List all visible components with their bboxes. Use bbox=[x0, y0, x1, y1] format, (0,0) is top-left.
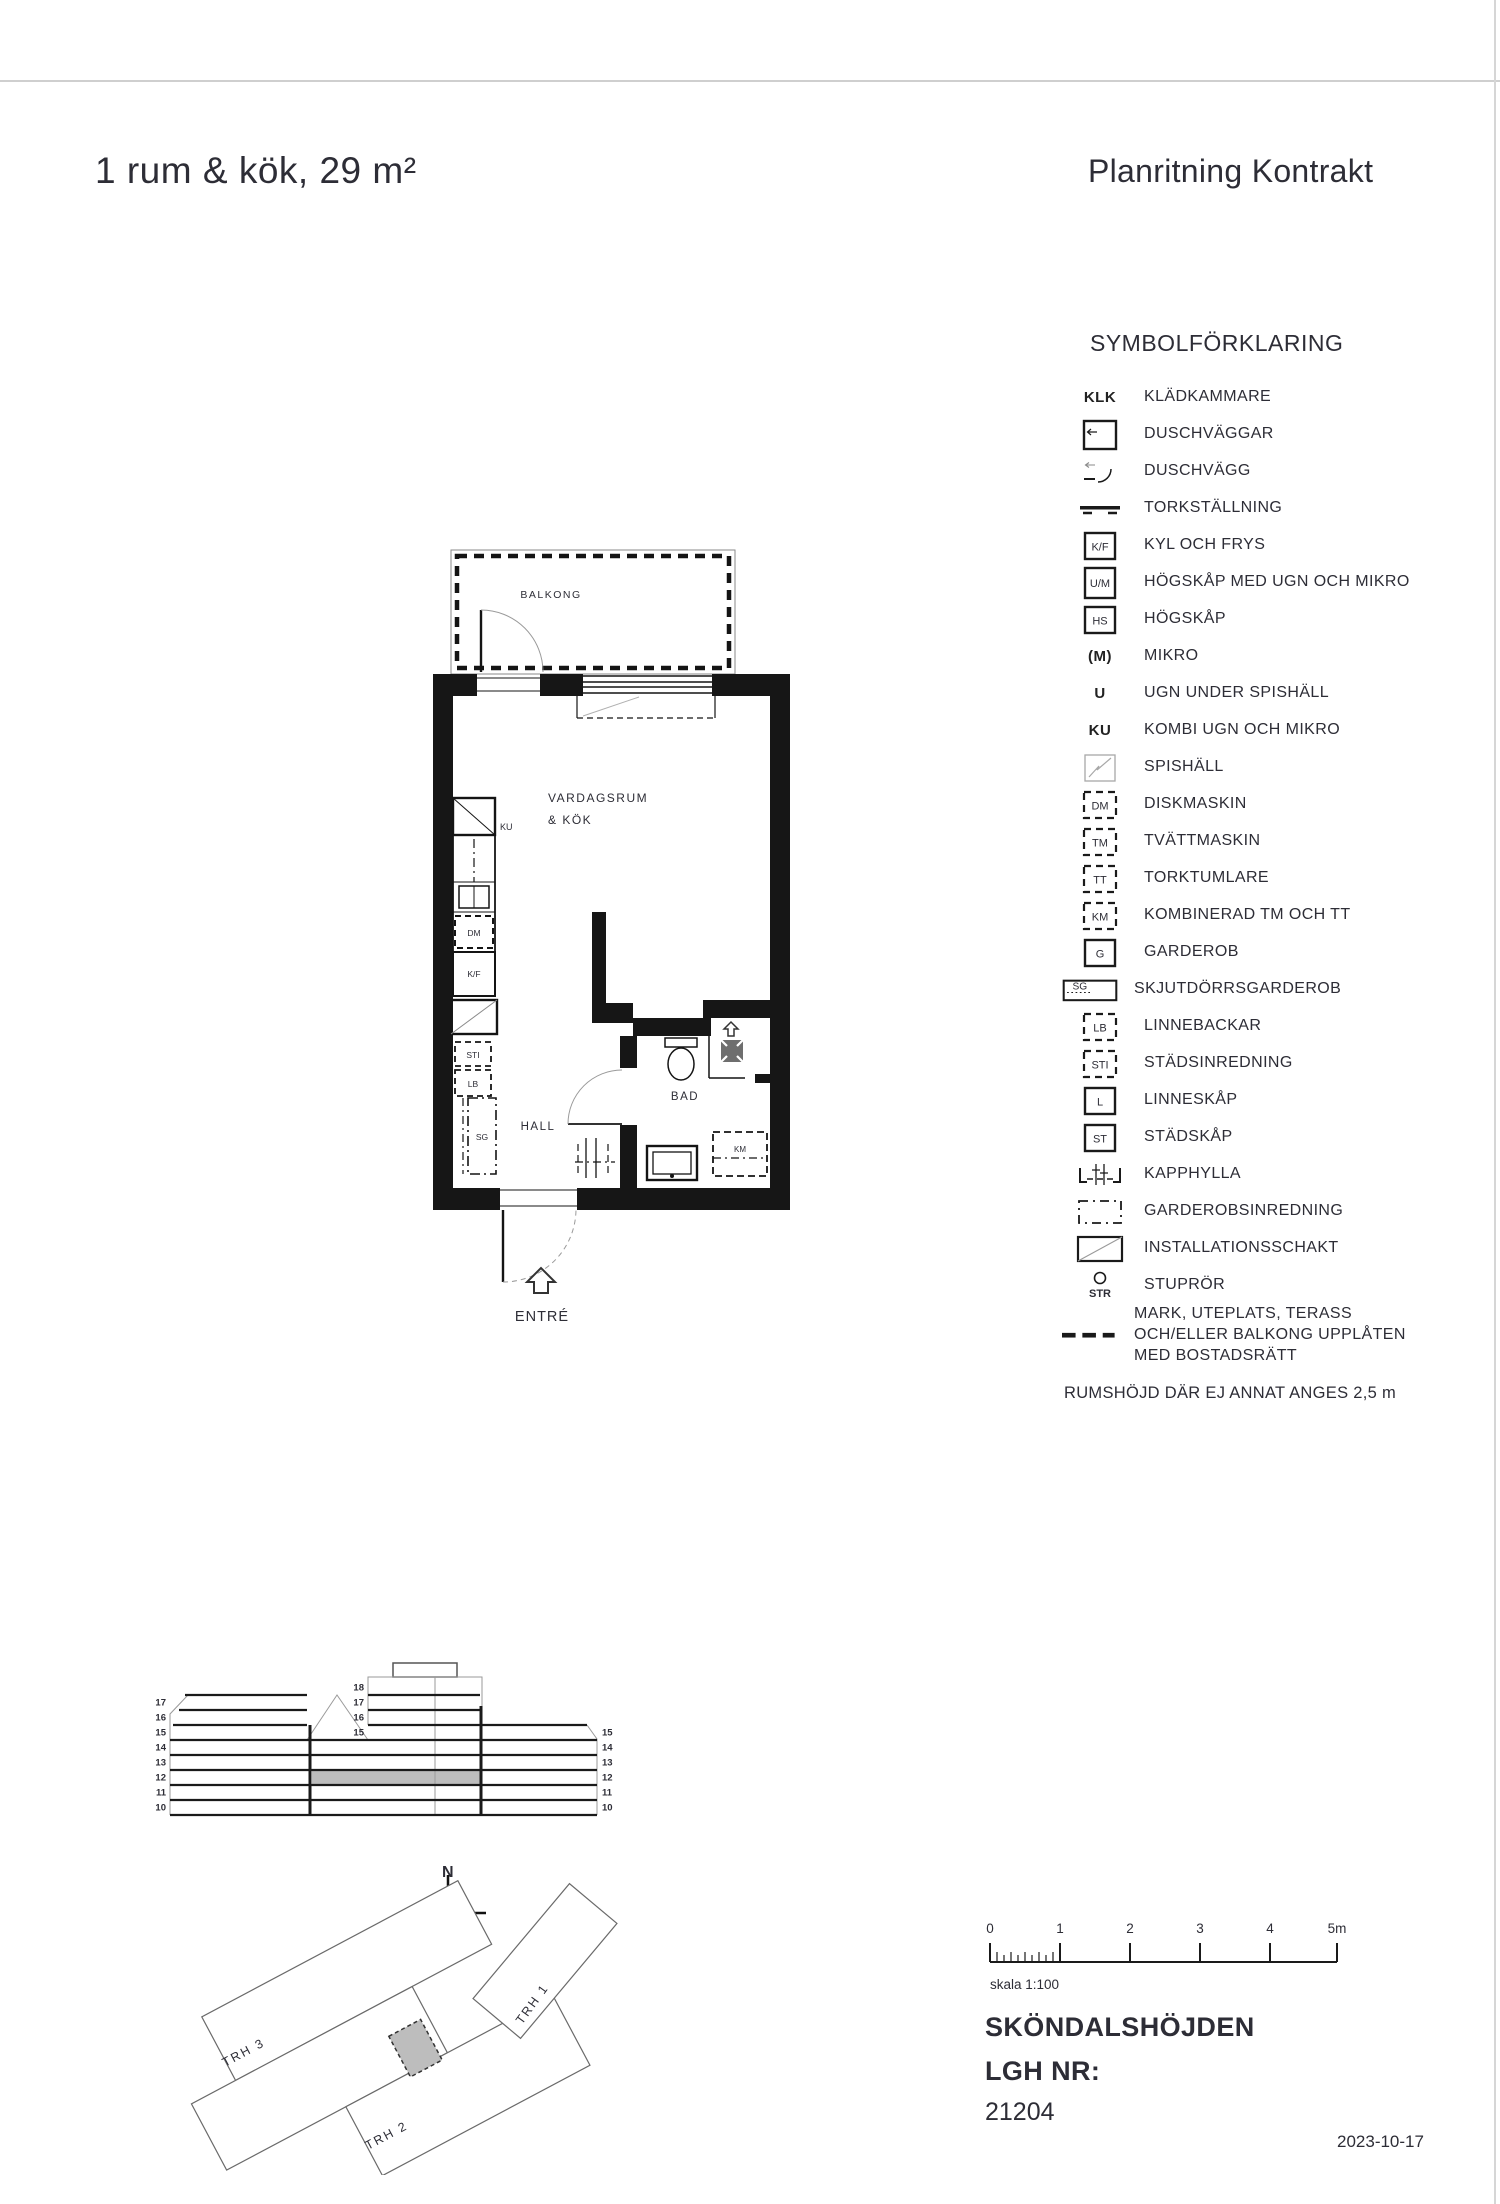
legend-item: KM KOMBINERAD TM OCH TT bbox=[1072, 897, 1496, 934]
washer-dryer-unit bbox=[713, 1132, 767, 1176]
svg-text:HS: HS bbox=[1092, 615, 1107, 627]
shower-arrow-icon bbox=[724, 1022, 738, 1036]
svg-text:TT: TT bbox=[1093, 874, 1107, 886]
legend-symbol: L bbox=[1072, 1086, 1128, 1116]
page-title: 1 rum & kök, 29 m² bbox=[95, 150, 417, 192]
toilet bbox=[665, 1038, 697, 1080]
legend-symbol bbox=[1072, 456, 1128, 488]
legend-symbol: LB bbox=[1072, 1012, 1128, 1042]
legend-symbol: ST bbox=[1072, 1123, 1128, 1153]
elevation-section-dividers bbox=[310, 1706, 481, 1815]
svg-text:TM: TM bbox=[1092, 837, 1108, 849]
scale-tick-3: 3 bbox=[1196, 1921, 1204, 1936]
legend-item-label: TORKTUMLARE bbox=[1144, 868, 1269, 889]
legend-item: TORKSTÄLLNING bbox=[1072, 490, 1496, 527]
legend-item-label: DUSCHVÄGG bbox=[1144, 461, 1251, 482]
elevation-left-floor-numbers: 1716151413121110 bbox=[155, 1698, 166, 1814]
scale-tick-4: 4 bbox=[1266, 1921, 1274, 1936]
balcony-label: BALKONG bbox=[520, 589, 581, 601]
svg-text:SG: SG bbox=[1072, 981, 1087, 992]
floor-number: 18 bbox=[353, 1683, 364, 1694]
box-icon: G bbox=[1083, 938, 1117, 968]
scale-bar: 0 1 2 3 4 5m skala 1:100 bbox=[975, 1905, 1375, 2000]
legend-item-label: GARDEROBSINREDNING bbox=[1144, 1201, 1343, 1222]
sg-label: SG bbox=[476, 1132, 488, 1142]
floor-number: 12 bbox=[155, 1773, 166, 1784]
legend-item-label: KOMBI UGN OCH MIKRO bbox=[1144, 720, 1340, 741]
floor-number: 15 bbox=[353, 1728, 364, 1739]
legend-item-label: HÖGSKÅP MED UGN OCH MIKRO bbox=[1144, 572, 1410, 593]
legend-item: KLK KLÄDKAMMARE bbox=[1072, 379, 1496, 416]
apartment-number: 21204 bbox=[985, 2098, 1055, 2127]
lb-label: LB bbox=[468, 1079, 479, 1089]
floor-number: 10 bbox=[602, 1803, 613, 1814]
svg-text:G: G bbox=[1096, 948, 1105, 960]
scale-tick-labels: 0 1 2 3 4 5m bbox=[986, 1921, 1346, 1936]
living-room-label-line2: & KÖK bbox=[548, 813, 592, 827]
legend-item-label: LINNESKÅP bbox=[1144, 1090, 1237, 1111]
drying-rack-icon bbox=[1077, 497, 1123, 521]
balcony-door-swing bbox=[481, 610, 543, 672]
legend-item-label: SKJUTDÖRRSGARDEROB bbox=[1134, 979, 1341, 1000]
legend-symbol bbox=[1072, 497, 1128, 521]
elevation-floor-lines bbox=[170, 1695, 597, 1815]
legend-symbol bbox=[1072, 1235, 1128, 1263]
legend-symbol: U bbox=[1072, 685, 1128, 702]
floor-number: 15 bbox=[155, 1728, 166, 1739]
balcony: BALKONG bbox=[451, 550, 735, 674]
svg-text:K/F: K/F bbox=[1091, 541, 1108, 553]
svg-text:ST: ST bbox=[1093, 1133, 1107, 1145]
legend-item-label: INSTALLATIONSSCHAKT bbox=[1144, 1238, 1339, 1259]
legend-symbol bbox=[1072, 1198, 1128, 1226]
floor-number: 10 bbox=[155, 1803, 166, 1814]
legend-item-label: MIKRO bbox=[1144, 646, 1198, 667]
box-icon: HS bbox=[1083, 605, 1117, 635]
legend-symbol bbox=[1072, 753, 1128, 783]
box-dashed-icon: STI bbox=[1082, 1049, 1118, 1079]
kitchen-unit-labels: KU DM K/F STI LB SG bbox=[466, 822, 512, 1142]
shower-walls-icon bbox=[1082, 419, 1118, 451]
dm-label: DM bbox=[467, 928, 480, 938]
shower-curve-icon bbox=[1079, 456, 1121, 488]
document-type-title: Planritning Kontrakt bbox=[1088, 153, 1373, 190]
legend-item-label: TVÄTTMASKIN bbox=[1144, 831, 1260, 852]
legend-item: LB LINNEBACKAR bbox=[1072, 1008, 1496, 1045]
legend-symbol: (M) bbox=[1072, 648, 1128, 665]
box-diagonal-light-icon bbox=[1083, 753, 1117, 783]
downpipe-icon: STR bbox=[1087, 1270, 1113, 1302]
balcony-door-opening bbox=[477, 678, 540, 691]
legend-code: (M) bbox=[1088, 648, 1112, 665]
legend-item: TM TVÄTTMASKIN bbox=[1072, 823, 1496, 860]
bath-door bbox=[568, 1070, 622, 1124]
exterior-walls bbox=[433, 674, 790, 1210]
legend-item-label: GARDEROB bbox=[1144, 942, 1239, 963]
legend-item-label: STÄDSINREDNING bbox=[1144, 1053, 1293, 1074]
legend-item: DUSCHVÄGGAR bbox=[1072, 416, 1496, 453]
entrance-label: ENTRÉ bbox=[515, 1308, 569, 1325]
shower bbox=[709, 1022, 745, 1078]
project-name: SKÖNDALSHÖJDEN bbox=[985, 2012, 1255, 2043]
legend-symbol: HS bbox=[1072, 605, 1128, 635]
building-elevation: 1716151413121110 18171615 151413121110 bbox=[150, 1650, 640, 1835]
legend-code: U bbox=[1094, 685, 1105, 702]
legend-item-label: DISKMASKIN bbox=[1144, 794, 1247, 815]
legend-symbol: STI bbox=[1072, 1049, 1128, 1079]
floor-number: 13 bbox=[155, 1758, 166, 1769]
legend-code: KU bbox=[1089, 722, 1112, 739]
legend-item: K/F KYL OCH FRYS bbox=[1072, 527, 1496, 564]
symbol-legend: SYMBOLFÖRKLARING KLK KLÄDKAMMARE DUSCHVÄ… bbox=[1072, 330, 1496, 1403]
window bbox=[577, 676, 715, 718]
legend-item: DUSCHVÄGG bbox=[1072, 453, 1496, 490]
legend-item: SPISHÄLL bbox=[1072, 749, 1496, 786]
legend-symbol: TM bbox=[1072, 827, 1128, 857]
box-icon: U/M bbox=[1083, 566, 1117, 600]
legend-item: GARDEROBSINREDNING bbox=[1072, 1193, 1496, 1230]
floor-number: 16 bbox=[353, 1713, 364, 1724]
box-dashed-icon: TM bbox=[1082, 827, 1118, 857]
legend-item-label: SPISHÄLL bbox=[1144, 757, 1224, 778]
legend-item-label: UGN UNDER SPISHÄLL bbox=[1144, 683, 1329, 704]
legend-symbol: STR bbox=[1072, 1270, 1128, 1302]
apartment-number-label: LGH NR: bbox=[985, 2056, 1100, 2087]
legend-item-label: KOMBINERAD TM OCH TT bbox=[1144, 905, 1351, 926]
floor-number: 13 bbox=[602, 1758, 613, 1769]
legend-title: SYMBOLFÖRKLARING bbox=[1090, 330, 1496, 357]
svg-text:KM: KM bbox=[1092, 911, 1109, 923]
legend-symbol: TT bbox=[1072, 864, 1128, 894]
legend-code: KLK bbox=[1084, 389, 1116, 406]
legend-symbol bbox=[1072, 1159, 1128, 1191]
floor-plan: BALKONG bbox=[425, 540, 805, 1370]
legend-item: SG SKJUTDÖRRSGARDEROB bbox=[1072, 971, 1496, 1008]
washbasin bbox=[647, 1146, 697, 1180]
legend-symbol: KLK bbox=[1072, 389, 1128, 406]
legend-symbol: K/F bbox=[1072, 531, 1128, 561]
ku-label: KU bbox=[500, 822, 513, 832]
legend-symbol: KU bbox=[1072, 722, 1128, 739]
floor-number: 14 bbox=[155, 1743, 166, 1754]
legend-item-label: MARK, UTEPLATS, TERASS OCH/ELLER BALKONG… bbox=[1134, 1304, 1434, 1366]
box-dashed-icon: TT bbox=[1082, 864, 1118, 894]
km-label: KM bbox=[734, 1145, 746, 1154]
legend-symbol: G bbox=[1072, 938, 1128, 968]
legend-item: STR STUPRÖR bbox=[1072, 1267, 1496, 1304]
sliding-wardrobe-icon: SG bbox=[1062, 975, 1118, 1005]
kitchen-units bbox=[451, 798, 497, 1174]
legend-item: U/M HÖGSKÅP MED UGN OCH MIKRO bbox=[1072, 564, 1496, 601]
room-height-note: RUMSHÖJD DÄR EJ ANNAT ANGES 2,5 m bbox=[1064, 1384, 1484, 1403]
svg-text:STI: STI bbox=[1091, 1059, 1108, 1071]
floor-number: 11 bbox=[602, 1788, 613, 1799]
floor-number: 16 bbox=[155, 1713, 166, 1724]
legend-symbol bbox=[1072, 419, 1128, 451]
hall-label: HALL bbox=[521, 1121, 556, 1133]
bath-label: BAD bbox=[671, 1091, 699, 1103]
legend-item: DM DISKMASKIN bbox=[1072, 786, 1496, 823]
page-top-divider bbox=[0, 80, 1500, 82]
floor-number: 17 bbox=[353, 1698, 364, 1709]
legend-item-label: STUPRÖR bbox=[1144, 1275, 1225, 1296]
legend-item: MARK, UTEPLATS, TERASS OCH/ELLER BALKONG… bbox=[1072, 1304, 1496, 1366]
document-date: 2023-10-17 bbox=[1337, 2132, 1424, 2152]
legend-item: KAPPHYLLA bbox=[1072, 1156, 1496, 1193]
elevation-right-floor-numbers: 151413121110 bbox=[602, 1728, 613, 1814]
legend-item: INSTALLATIONSSCHAKT bbox=[1072, 1230, 1496, 1267]
legend-symbol bbox=[1062, 1328, 1118, 1342]
scale-tick-2: 2 bbox=[1126, 1921, 1134, 1936]
entrance-door bbox=[500, 1190, 577, 1282]
legend-item: TT TORKTUMLARE bbox=[1072, 860, 1496, 897]
site-plan: N TRH 3 TRH 2 TRH 1 bbox=[140, 1845, 650, 2175]
floor-number: 17 bbox=[155, 1698, 166, 1709]
box-icon: ST bbox=[1083, 1123, 1117, 1153]
legend-item: (M) MIKRO bbox=[1072, 638, 1496, 675]
legend-item-label: KLÄDKAMMARE bbox=[1144, 387, 1271, 408]
legend-item: ST STÄDSKÅP bbox=[1072, 1119, 1496, 1156]
box-diagonal-icon bbox=[1076, 1235, 1124, 1263]
legend-symbol: U/M bbox=[1072, 566, 1128, 600]
boundary-dashes-icon bbox=[1062, 1328, 1118, 1342]
svg-text:U/M: U/M bbox=[1090, 578, 1110, 590]
scale-bar-lines bbox=[990, 1943, 1337, 1962]
legend-item: U UGN UNDER SPISHÄLL bbox=[1072, 675, 1496, 712]
legend-item-label: DUSCHVÄGGAR bbox=[1144, 424, 1274, 445]
scale-caption: skala 1:100 bbox=[990, 1977, 1059, 1992]
legend-item: G GARDEROB bbox=[1072, 934, 1496, 971]
sti-label: STI bbox=[466, 1050, 479, 1060]
coat-rack-symbol bbox=[575, 1138, 615, 1178]
floor-number: 12 bbox=[602, 1773, 613, 1784]
svg-text:STR: STR bbox=[1089, 1288, 1111, 1300]
legend-item-label: HÖGSKÅP bbox=[1144, 609, 1226, 630]
box-dashed-icon: KM bbox=[1082, 901, 1118, 931]
kf-label: K/F bbox=[467, 969, 480, 979]
box-icon: L bbox=[1083, 1086, 1117, 1116]
floor-number: 14 bbox=[602, 1743, 613, 1754]
legend-item-label: LINNEBACKAR bbox=[1144, 1016, 1261, 1037]
scale-tick-1: 1 bbox=[1056, 1921, 1064, 1936]
box-dashed-icon: LB bbox=[1082, 1012, 1118, 1042]
svg-text:DM: DM bbox=[1091, 800, 1108, 812]
legend-item-label: KAPPHYLLA bbox=[1144, 1164, 1241, 1185]
legend-symbol: DM bbox=[1072, 790, 1128, 820]
legend-item-label: TORKSTÄLLNING bbox=[1144, 498, 1282, 519]
wardrobe-interior-icon bbox=[1076, 1198, 1124, 1226]
legend-item: L LINNESKÅP bbox=[1072, 1082, 1496, 1119]
coat-rack-icon bbox=[1076, 1159, 1124, 1191]
elevation-middle-floor-numbers: 18171615 bbox=[353, 1683, 364, 1739]
floor-number: 15 bbox=[602, 1728, 613, 1739]
legend-item: STI STÄDSINREDNING bbox=[1072, 1045, 1496, 1082]
apartment-floor-highlight bbox=[312, 1771, 480, 1785]
legend-item-label: KYL OCH FRYS bbox=[1144, 535, 1265, 556]
box-icon: K/F bbox=[1083, 531, 1117, 561]
box-dashed-icon: DM bbox=[1082, 790, 1118, 820]
legend-item-label: STÄDSKÅP bbox=[1144, 1127, 1233, 1148]
svg-text:L: L bbox=[1097, 1096, 1103, 1108]
floor-number: 11 bbox=[156, 1788, 167, 1799]
living-room-label-line1: VARDAGSRUM bbox=[548, 791, 648, 805]
legend-item: KU KOMBI UGN OCH MIKRO bbox=[1072, 712, 1496, 749]
legend-symbol: SG bbox=[1062, 975, 1118, 1005]
legend-items: KLK KLÄDKAMMARE DUSCHVÄGGAR DUSCHVÄGG TO… bbox=[1072, 379, 1496, 1366]
legend-symbol: KM bbox=[1072, 901, 1128, 931]
legend-item: HS HÖGSKÅP bbox=[1072, 601, 1496, 638]
scale-tick-5: 5m bbox=[1328, 1921, 1347, 1936]
scale-tick-0: 0 bbox=[986, 1921, 994, 1936]
svg-text:LB: LB bbox=[1093, 1022, 1106, 1034]
